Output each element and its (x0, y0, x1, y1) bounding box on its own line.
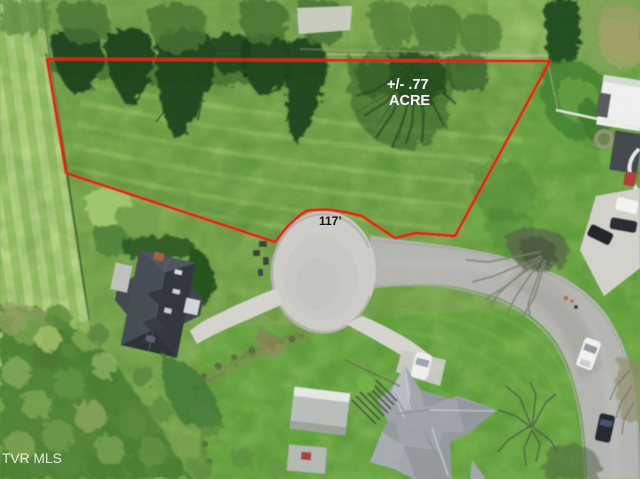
svg-text:ACRE: ACRE (389, 93, 430, 109)
svg-text:117’: 117’ (319, 214, 342, 228)
svg-text:TVR MLS: TVR MLS (2, 451, 62, 466)
svg-text:+/- .77: +/- .77 (387, 77, 429, 93)
